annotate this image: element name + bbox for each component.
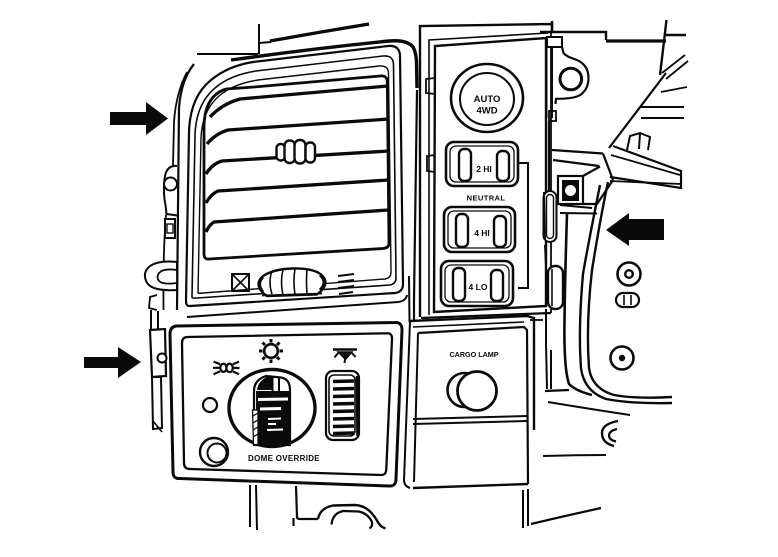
svg-text:4 HI: 4 HI: [474, 228, 490, 238]
svg-text:CARGO LAMP: CARGO LAMP: [449, 350, 498, 359]
svg-text:4 LO: 4 LO: [469, 282, 488, 292]
svg-text:4WD: 4WD: [476, 106, 497, 117]
svg-text:NEUTRAL: NEUTRAL: [467, 194, 506, 203]
svg-text:AUTO: AUTO: [474, 94, 501, 105]
svg-text:DOME OVERRIDE: DOME OVERRIDE: [248, 454, 320, 463]
svg-text:2 HI: 2 HI: [476, 164, 492, 174]
